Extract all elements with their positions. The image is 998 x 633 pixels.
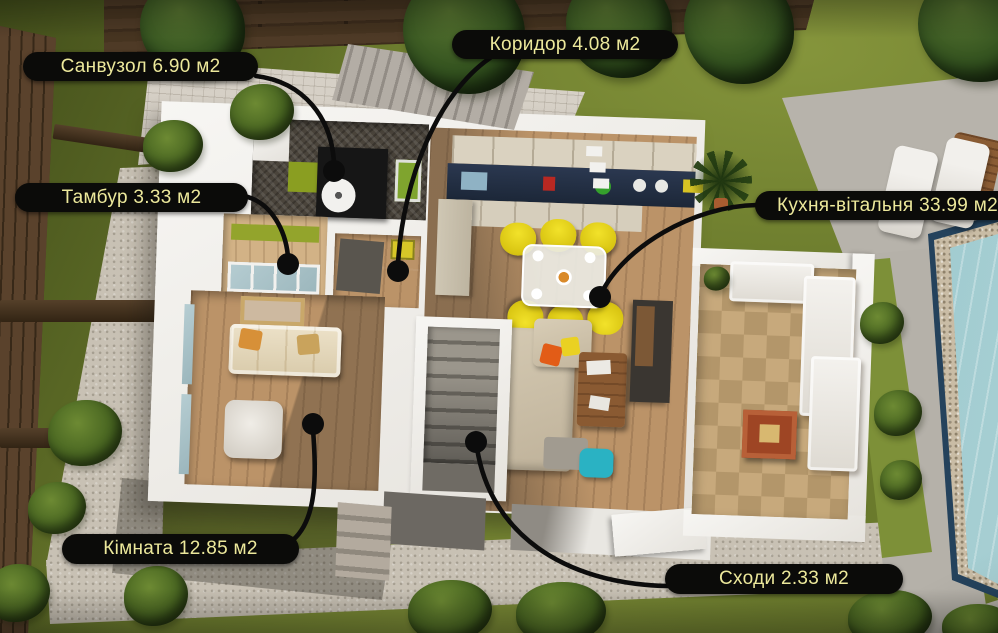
- fence-rail-mid: [0, 300, 162, 322]
- armchair: [223, 400, 283, 460]
- place-setting-1: [532, 250, 543, 261]
- kitchen-counter-leg: [435, 199, 472, 296]
- vestibule-grass-mat: [231, 224, 320, 243]
- vestibule-glass-door: [227, 262, 320, 295]
- bathroom-cabinet: [394, 159, 421, 202]
- outdoor-sofa-lower: [807, 356, 861, 472]
- bush-bottom-1: [408, 580, 492, 633]
- magazine-1: [586, 360, 611, 375]
- conifer-tree-4: [684, 0, 794, 84]
- area-label-tambur: Тамбур 3.33 м2: [15, 183, 248, 212]
- entrance-steps: [335, 502, 391, 581]
- fire-pit-top: [759, 424, 780, 443]
- bathroom-rug: [288, 162, 319, 193]
- area-label-kimnata: Кімната 12.85 м2: [62, 534, 299, 564]
- place-setting-4: [583, 290, 594, 301]
- place-setting-2: [584, 252, 595, 263]
- tv-media-unit: [630, 300, 674, 403]
- area-label-korydor: Коридор 4.08 м2: [452, 30, 678, 59]
- red-utensil: [543, 176, 555, 190]
- outdoor-sofa-top: [729, 261, 814, 304]
- magazine-2: [589, 395, 611, 411]
- floor-plan-sheet: [390, 239, 415, 260]
- cyan-pouf: [579, 448, 614, 478]
- center-dish: [556, 269, 573, 286]
- house: [141, 93, 889, 602]
- coffee-table: [577, 352, 628, 428]
- fire-pit-table: [742, 410, 798, 460]
- conifer-tree-5: [918, 0, 998, 82]
- area-label-skhody: Сходи 2.33 м2: [665, 564, 903, 594]
- wall-shelf-3: [593, 178, 609, 189]
- sofa-pillow-orange: [238, 328, 263, 352]
- plate-1: [633, 179, 646, 192]
- place-setting-3: [531, 288, 542, 299]
- sofa-pillow-tan: [296, 333, 320, 355]
- area-label-kukhnia: Кухня-вітальня 33.99 м2: [755, 191, 998, 220]
- bush-bottom-2: [516, 582, 606, 633]
- bush-left-3: [0, 564, 50, 622]
- wall-picture: [461, 172, 488, 191]
- staircase-shadow: [423, 327, 500, 465]
- plate-2: [655, 179, 668, 192]
- palm-pot: [714, 198, 728, 210]
- wall-shelf-1: [586, 146, 602, 157]
- dining-table: [521, 244, 607, 309]
- tv-wood-panel: [635, 306, 655, 367]
- entry-mat: [336, 238, 384, 294]
- pillow-yellow: [560, 336, 580, 356]
- staircase-landing: [422, 462, 495, 492]
- picture-frame: [240, 296, 305, 326]
- floor-plan-scene: Санвузол 6.90 м2 Коридор 4.08 м2 Тамбур …: [0, 0, 998, 633]
- entrance-porch: [382, 491, 486, 550]
- wall-shelf-2: [590, 162, 606, 173]
- area-label-sanvuzol: Санвузол 6.90 м2: [23, 52, 258, 81]
